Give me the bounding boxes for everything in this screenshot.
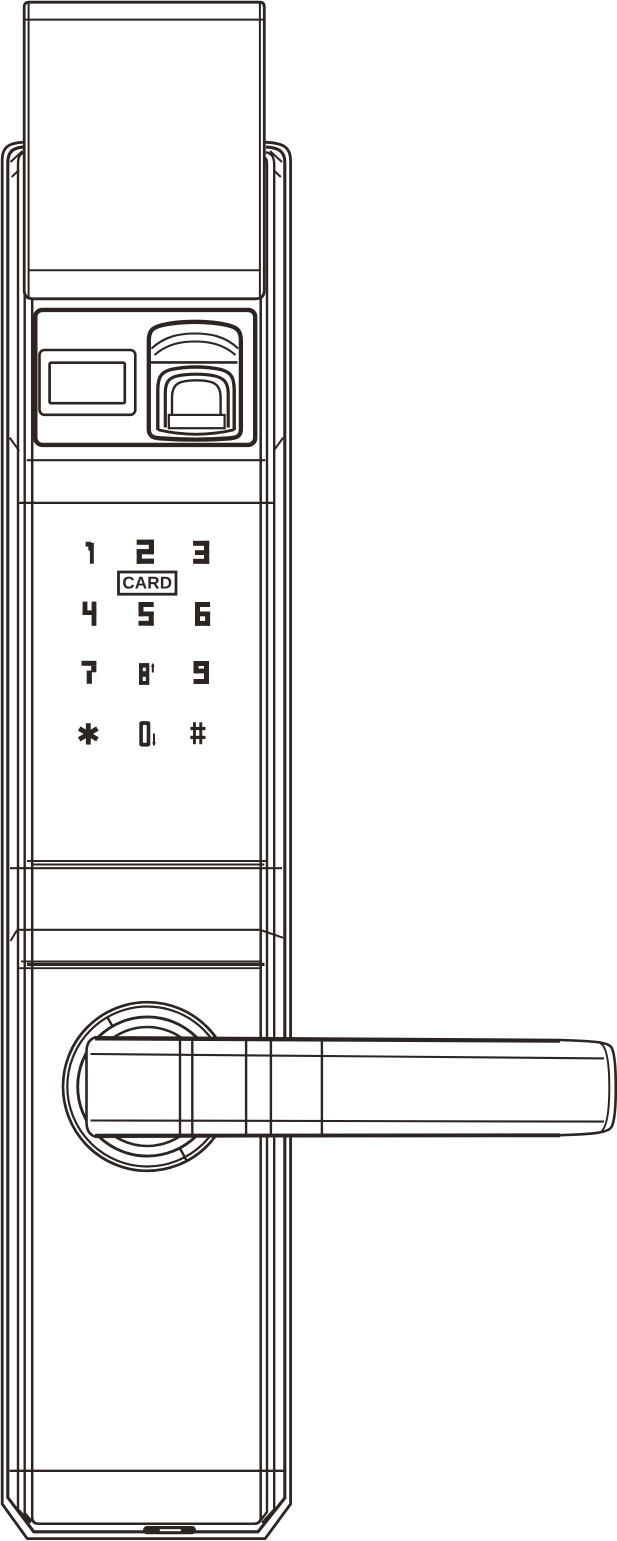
svg-text:CARD: CARD	[122, 574, 172, 593]
